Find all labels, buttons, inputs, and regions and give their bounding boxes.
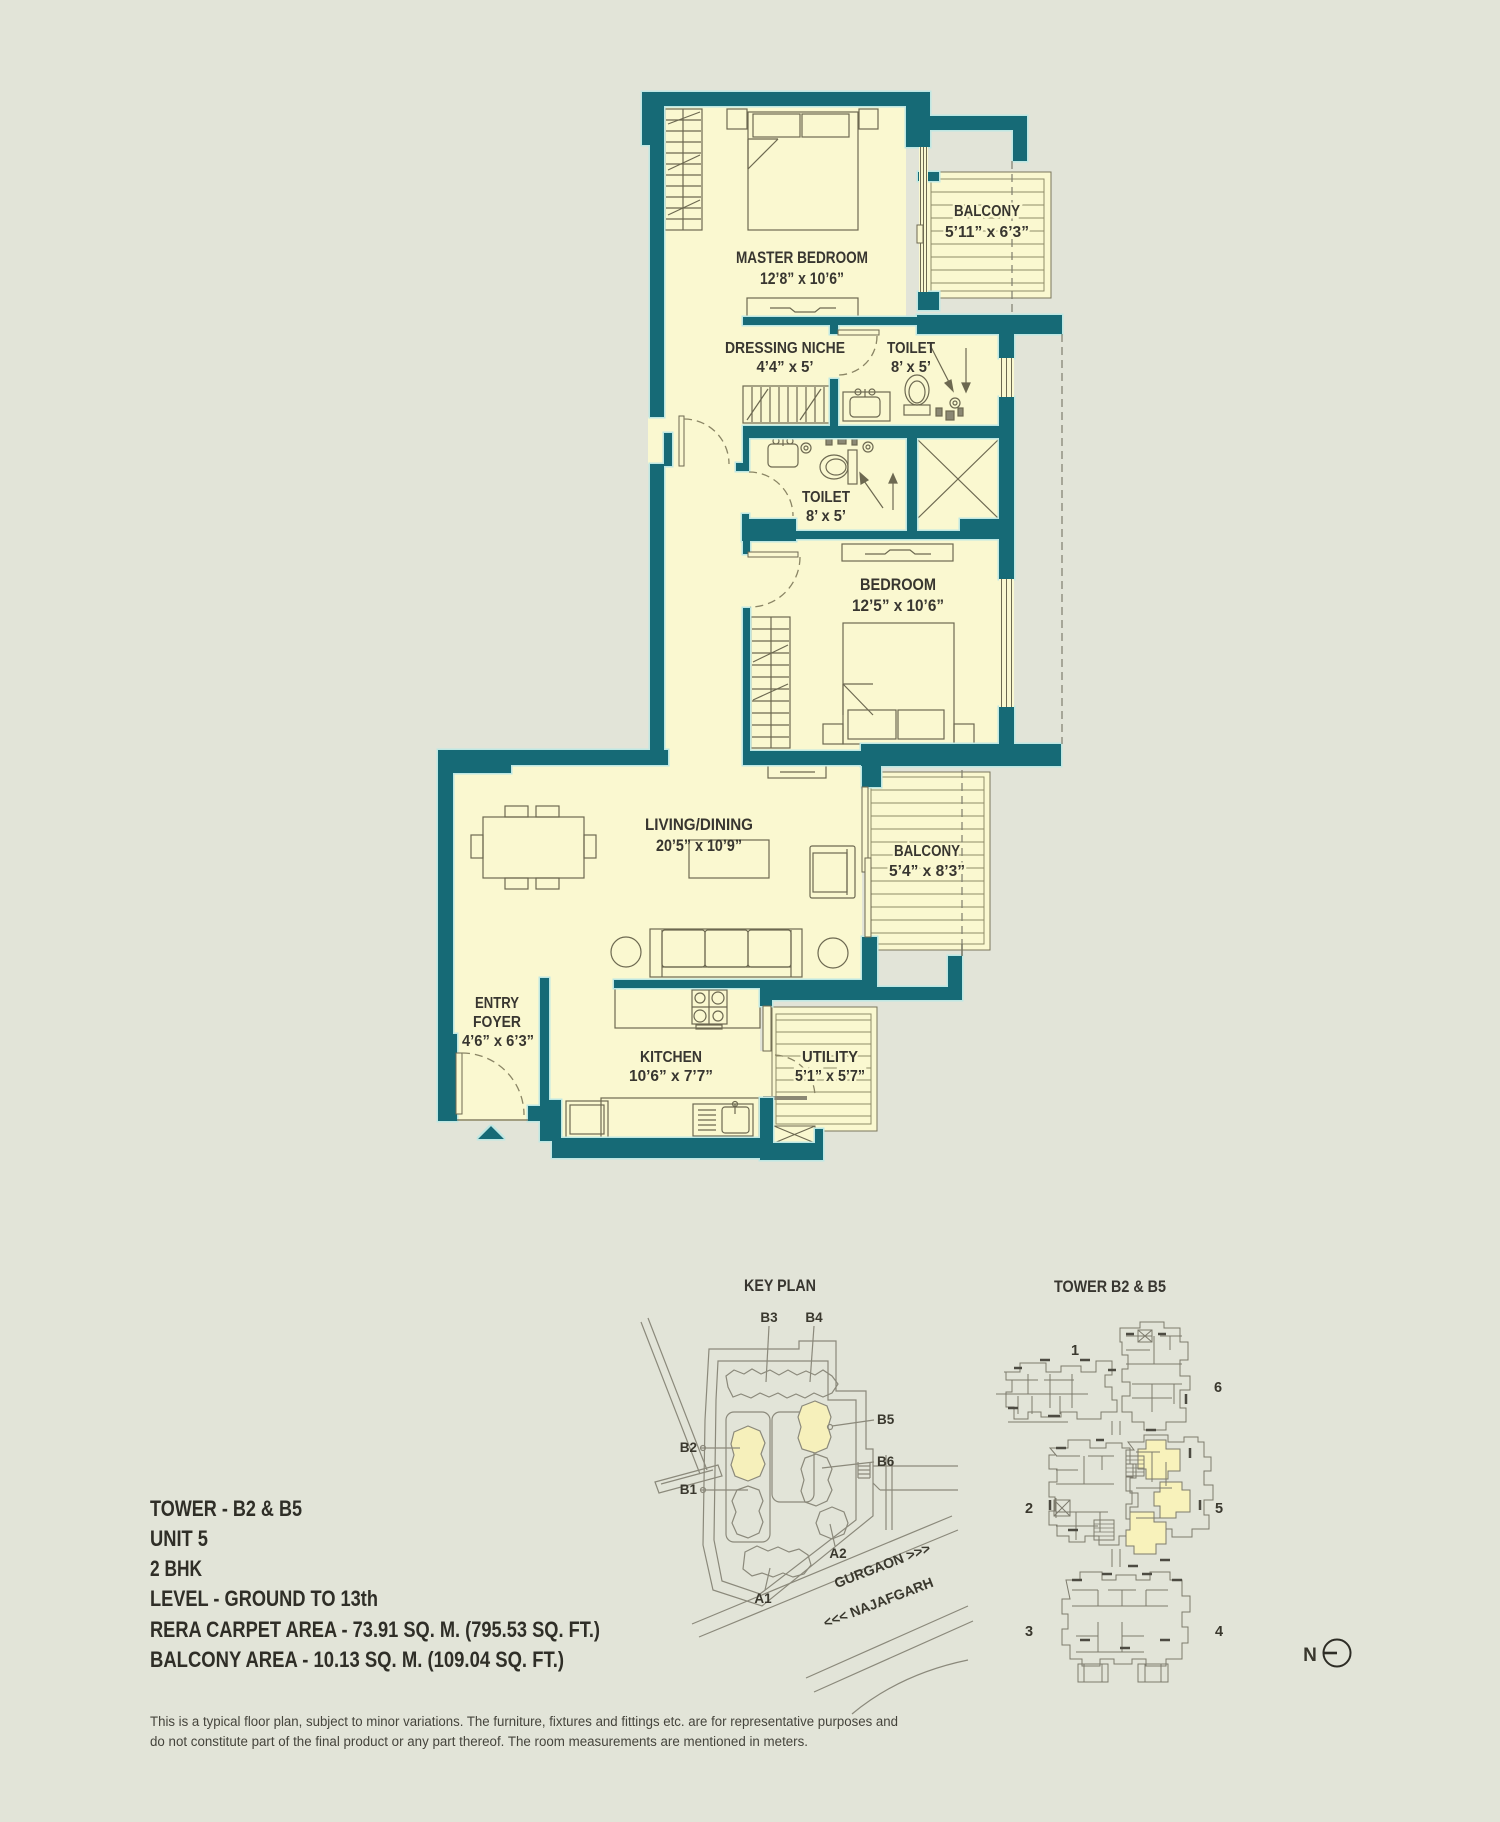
svg-text:A2: A2 (829, 1546, 846, 1561)
svg-text:FOYER: FOYER (473, 1014, 521, 1031)
svg-text:8’ x 5’: 8’ x 5’ (891, 359, 931, 376)
svg-text:4’6” x 6’3”: 4’6” x 6’3” (462, 1033, 534, 1050)
svg-text:12’5” x 10’6”: 12’5” x 10’6” (852, 596, 944, 615)
svg-text:LEVEL - GROUND TO 13th: LEVEL - GROUND TO 13th (150, 1586, 378, 1611)
svg-text:B4: B4 (805, 1310, 823, 1325)
svg-text:1: 1 (1071, 1343, 1079, 1359)
svg-text:BALCONY: BALCONY (954, 203, 1021, 220)
svg-text:N: N (1303, 1645, 1317, 1666)
svg-text:KEY PLAN: KEY PLAN (744, 1277, 816, 1295)
svg-text:8’ x 5’: 8’ x 5’ (806, 508, 846, 525)
svg-text:B3: B3 (760, 1310, 778, 1325)
svg-text:TOILET: TOILET (887, 340, 935, 357)
svg-text:DRESSING NICHE: DRESSING NICHE (725, 340, 845, 357)
svg-text:TOILET: TOILET (802, 489, 850, 506)
svg-text:4’4” x 5’: 4’4” x 5’ (757, 359, 814, 376)
svg-text:UTILITY: UTILITY (802, 1049, 859, 1066)
svg-text:MASTER BEDROOM: MASTER BEDROOM (736, 248, 868, 267)
svg-text:This is a typical floor plan,: This is a typical floor plan, subject to… (150, 1714, 898, 1729)
svg-text:UNIT 5: UNIT 5 (150, 1526, 208, 1551)
svg-text:TOWER - B2 & B5: TOWER - B2 & B5 (150, 1496, 302, 1521)
svg-text:BALCONY: BALCONY (894, 843, 961, 860)
svg-text:2 BHK: 2 BHK (150, 1556, 202, 1581)
svg-text:do not constitute part of the: do not constitute part of the final prod… (150, 1734, 808, 1749)
svg-text:5: 5 (1215, 1501, 1223, 1517)
svg-text:B5: B5 (877, 1412, 895, 1427)
svg-text:3: 3 (1025, 1624, 1033, 1640)
svg-text:LIVING/DINING: LIVING/DINING (645, 815, 753, 834)
svg-text:12’8” x 10’6”: 12’8” x 10’6” (760, 269, 844, 288)
svg-text:10’6” x 7’7”: 10’6” x 7’7” (629, 1068, 713, 1085)
svg-text:BEDROOM: BEDROOM (860, 575, 936, 594)
svg-text:20’5” x 10’9”: 20’5” x 10’9” (656, 836, 742, 855)
svg-text:B2: B2 (680, 1440, 697, 1455)
svg-text:B1: B1 (680, 1482, 698, 1497)
svg-text:RERA CARPET AREA - 73.91 SQ. M: RERA CARPET AREA - 73.91 SQ. M. (795.53 … (150, 1617, 600, 1642)
svg-text:KITCHEN: KITCHEN (640, 1049, 702, 1066)
svg-text:6: 6 (1214, 1380, 1222, 1396)
svg-text:B6: B6 (877, 1454, 895, 1469)
svg-text:A1: A1 (754, 1591, 772, 1606)
svg-text:2: 2 (1025, 1501, 1033, 1517)
svg-text:5’11” x 6’3”: 5’11” x 6’3” (945, 224, 1029, 241)
svg-text:TOWER B2 & B5: TOWER B2 & B5 (1054, 1278, 1166, 1296)
svg-text:BALCONY AREA - 10.13 SQ. M. (1: BALCONY AREA - 10.13 SQ. M. (109.04 SQ. … (150, 1647, 564, 1672)
svg-text:4: 4 (1215, 1624, 1223, 1640)
svg-text:5’4” x 8’3”: 5’4” x 8’3” (889, 863, 965, 880)
svg-text:5’1” x 5’7”: 5’1” x 5’7” (795, 1068, 865, 1085)
svg-text:ENTRY: ENTRY (475, 995, 520, 1012)
